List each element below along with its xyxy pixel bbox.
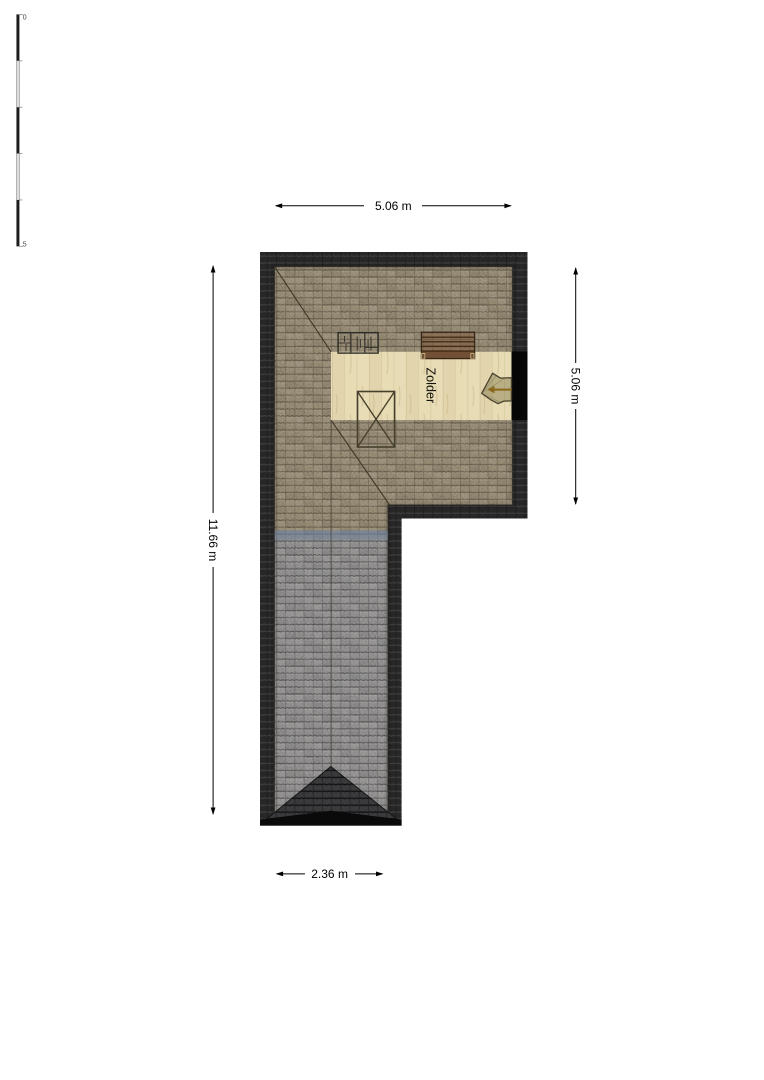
svg-text:2.36 m: 2.36 m (311, 867, 348, 881)
svg-text:Zolder: Zolder (424, 367, 438, 403)
svg-text:0: 0 (23, 15, 27, 22)
svg-text:5.06 m: 5.06 m (569, 368, 583, 405)
svg-text:5.06 m: 5.06 m (375, 199, 412, 213)
svg-text:5: 5 (23, 242, 27, 249)
svg-text:11.66 m: 11.66 m (206, 519, 220, 561)
